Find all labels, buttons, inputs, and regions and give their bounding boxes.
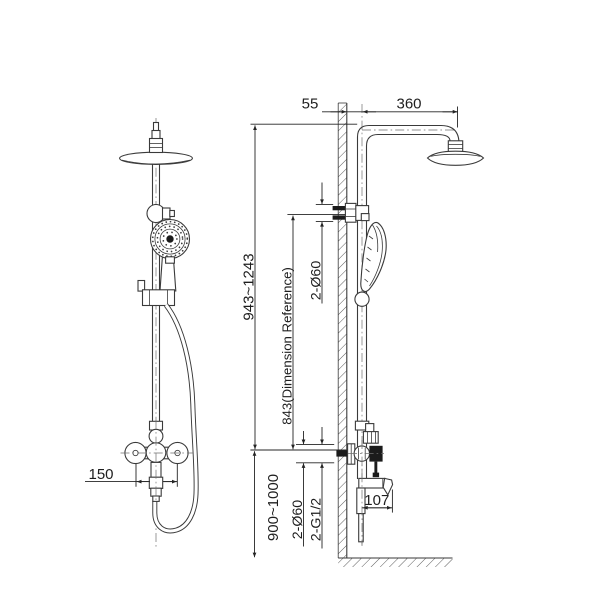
dim-label-107: 107 [364, 492, 389, 509]
dim-label-55: 55 [302, 96, 319, 113]
hand-shower-side [361, 214, 386, 292]
spray-hub [166, 235, 173, 242]
dim-label-2xG12: 2-G1/2 [309, 498, 325, 541]
wall-section [338, 103, 347, 558]
dim-spout-reach: 107 [362, 490, 393, 513]
dim-upper-flanges: 2-Ø60 [309, 183, 334, 304]
diverter-side [355, 421, 378, 443]
arm-tip-front [154, 123, 159, 132]
front-view: 150 [85, 118, 196, 549]
dim-reference-height: 843(Dimension Reference) [280, 214, 346, 449]
dim-front-valve-spacing: 150 [85, 464, 177, 487]
dim-label-upper-2xD60: 2-Ø60 [309, 261, 325, 301]
dim-overall-height: 943~1243 [241, 125, 258, 449]
dim-label-360: 360 [396, 96, 421, 113]
dim-label-900-1000: 900~1000 [265, 474, 282, 541]
mixer-valve-front [121, 420, 193, 503]
dim-lower-flanges: 2-Ø60 2-G1/2 [290, 427, 334, 549]
holder-knob [163, 208, 171, 219]
dim-label-843: 843(Dimension Reference) [280, 267, 295, 425]
front-rain-shower-head [120, 123, 193, 165]
dim-label-150: 150 [88, 466, 113, 483]
hand-shower-front [151, 220, 190, 292]
dim-top: 55 360 [251, 96, 459, 128]
technical-drawing-page: 150 [0, 0, 600, 600]
shower-dimension-drawing: 150 [0, 0, 600, 600]
side-view: 55 360 943~1243 843(Dimension Reference)… [241, 96, 484, 567]
dim-label-lower-2xD60: 2-Ø60 [290, 500, 306, 540]
dim-label-943-1243: 943~1243 [241, 253, 258, 320]
slider-bracket-side [355, 292, 369, 306]
side-rain-shower-head [428, 141, 484, 166]
shower-hose-front [155, 305, 196, 531]
floor-section [338, 558, 452, 567]
